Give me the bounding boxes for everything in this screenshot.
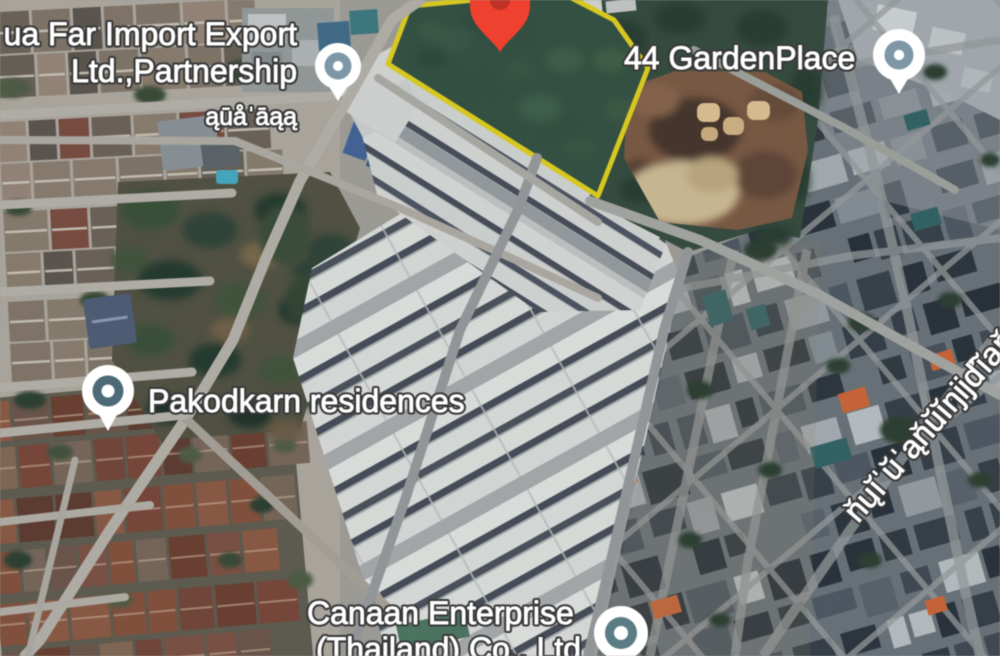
svg-text:44 GardenPlace: 44 GardenPlace [624, 40, 855, 76]
svg-text:ua Far Import Export: ua Far Import Export [4, 16, 298, 52]
svg-text:ąūåˈāąą: ąūåˈāąą [205, 103, 297, 131]
svg-text:Pakodkarn residences: Pakodkarn residences [148, 383, 465, 419]
svg-text:(Thailand) Co., Ltd: (Thailand) Co., Ltd [316, 631, 581, 656]
svg-text:Ltd.,Partnership: Ltd.,Partnership [71, 53, 297, 89]
svg-text:Canaan Enterprise: Canaan Enterprise [307, 595, 574, 631]
